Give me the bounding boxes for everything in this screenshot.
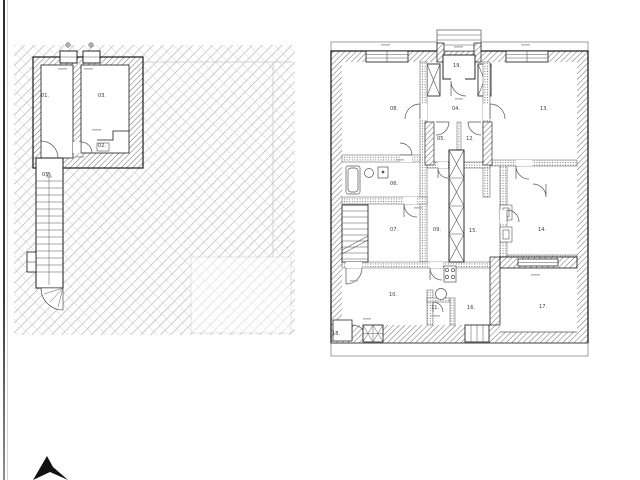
room-label-10: 10. bbox=[389, 292, 397, 298]
room-label-07: 07. bbox=[390, 227, 398, 233]
room-01 bbox=[41, 65, 73, 158]
stove-icon bbox=[444, 266, 456, 282]
room-label-05: 05. bbox=[437, 136, 445, 142]
ground-floor-plan: 08.19.04.13.05.12.06.07.09.15.14.10.11.1… bbox=[331, 30, 588, 356]
room-label-16: 16. bbox=[467, 305, 475, 311]
north-arrow-icon bbox=[33, 456, 68, 480]
room-label-05: 05. bbox=[42, 172, 50, 178]
ground-stairs bbox=[342, 205, 368, 262]
room-label-18: 18. bbox=[332, 331, 340, 337]
room-label-15: 15. bbox=[469, 228, 477, 234]
sink-icon bbox=[436, 289, 447, 300]
plot-outline bbox=[331, 343, 588, 356]
room-label-12: 12. bbox=[466, 136, 474, 142]
room-label-03: 03. bbox=[98, 93, 106, 99]
basement-plan: 01.03.02.05. bbox=[14, 43, 295, 335]
room-label-19: 19. bbox=[453, 63, 461, 69]
room-label-08: 08. bbox=[390, 106, 398, 112]
room-label-09: 09. bbox=[433, 227, 441, 233]
room-label-04: 04. bbox=[452, 106, 460, 112]
basement-building bbox=[33, 43, 143, 168]
floor-plan-drawing: 01.03.02.05. bbox=[0, 0, 640, 480]
room-label-01: 01. bbox=[41, 93, 49, 99]
room-label-11: 11. bbox=[431, 305, 439, 311]
room-label-17: 17. bbox=[539, 304, 547, 310]
room-label-06: 06. bbox=[390, 181, 398, 187]
room-label-13: 13. bbox=[540, 106, 548, 112]
room-label-14: 14. bbox=[538, 227, 546, 233]
washbasin-icon bbox=[365, 169, 374, 178]
scanned-floor-plan-page: 01.03.02.05. bbox=[0, 0, 640, 480]
room-label-02: 02. bbox=[98, 143, 106, 149]
chimney-shaft bbox=[449, 150, 464, 262]
